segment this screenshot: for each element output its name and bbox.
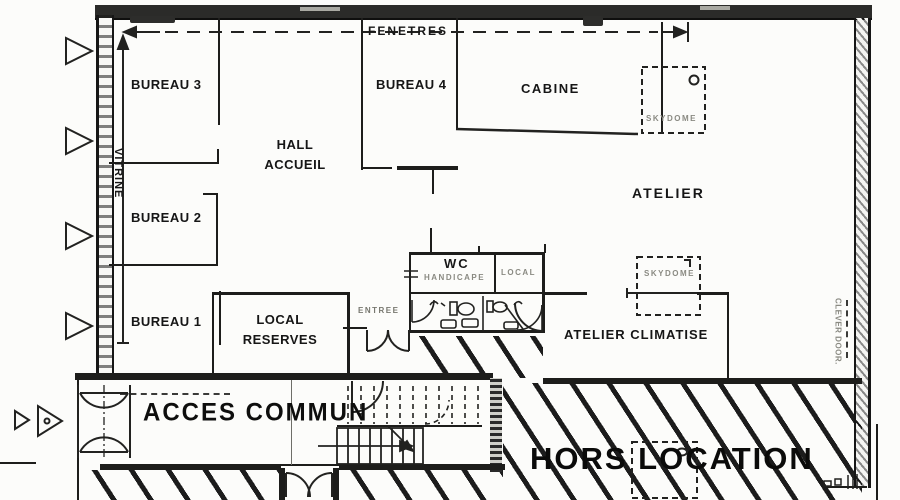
zone-label-hors-location: HORS LOCATION <box>530 441 814 477</box>
acces-double-door <box>279 466 339 500</box>
wc-vent-icon <box>404 271 418 277</box>
floor-plan-scan: FENETRES VITRINE BUREAU 3 BUREAU 4 CABIN… <box>0 0 900 500</box>
hall-line2: ACCUEIL <box>252 155 338 175</box>
street-entrance-door <box>78 385 130 458</box>
vitrine-label: VITRINE <box>112 148 124 198</box>
skydome-outline <box>632 67 705 498</box>
reserves-line2: RESERVES <box>232 330 328 350</box>
room-label-bureau2: BUREAU 2 <box>131 210 201 225</box>
clever-door-dash <box>846 300 848 358</box>
staircase <box>318 426 423 464</box>
wc-handicape-label: HANDICAPE <box>424 273 485 282</box>
room-label-local-reserves: LOCAL RESERVES <box>232 310 328 350</box>
wc-local-label: LOCAL <box>501 268 536 277</box>
room-label-cabine: CABINE <box>521 81 580 96</box>
cabine-bottom-wall <box>456 129 638 134</box>
hall-line1: HALL <box>252 135 338 155</box>
room-label-bureau4: BUREAU 4 <box>376 77 446 92</box>
skydome-label-mid: SKYDOME <box>644 269 695 278</box>
plan-linework <box>0 0 900 500</box>
wc-label: WC <box>444 256 470 271</box>
zone-label-acces-commun: ACCES COMMUN <box>143 398 368 427</box>
room-label-atelier-climatise: ATELIER CLIMATISE <box>564 327 708 342</box>
direction-arrow-icon <box>15 38 92 436</box>
fenetres-label: FENETRES <box>368 24 448 38</box>
room-label-bureau1: BUREAU 1 <box>131 314 201 329</box>
entree-double-door <box>367 330 409 351</box>
room-label-hall-accueil: HALL ACCUEIL <box>252 135 338 175</box>
scan-marks <box>824 473 857 489</box>
room-label-atelier: ATELIER <box>632 185 705 201</box>
clever-door-label: CLEVER DOOR. <box>832 298 842 364</box>
skydome-label-top: SKYDOME <box>646 114 697 123</box>
reserves-line1: LOCAL <box>232 310 328 330</box>
room-label-bureau3: BUREAU 3 <box>131 77 201 92</box>
wc-fixtures <box>412 296 542 331</box>
entree-label: ENTREE <box>358 306 399 315</box>
